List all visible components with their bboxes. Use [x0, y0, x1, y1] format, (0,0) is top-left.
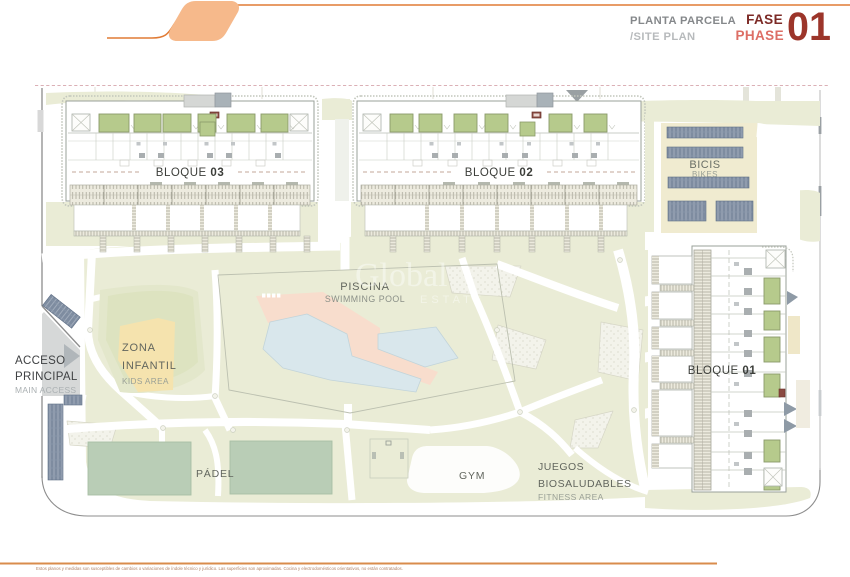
svg-text:01: 01 [787, 5, 831, 49]
svg-text:ACCESO: ACCESO [15, 355, 65, 367]
svg-text:GYM: GYM [459, 470, 485, 482]
svg-text:FITNESS AREA: FITNESS AREA [538, 492, 604, 502]
svg-text:PHASE: PHASE [735, 28, 784, 43]
svg-text:BLOQUE 01: BLOQUE 01 [688, 365, 757, 377]
svg-text:KIDS AREA: KIDS AREA [122, 377, 169, 386]
svg-text:PÁDEL: PÁDEL [196, 467, 234, 480]
svg-text:BLOQUE 02: BLOQUE 02 [465, 167, 533, 179]
svg-text:Estos planos y medidas son sus: Estos planos y medidas son susceptibles … [36, 566, 403, 571]
svg-text:Global: Global [355, 257, 448, 294]
svg-text:ZONA: ZONA [122, 342, 156, 354]
svg-text:PRINCIPAL: PRINCIPAL [15, 371, 78, 383]
svg-text:BIOSALUDABLES: BIOSALUDABLES [538, 478, 631, 490]
svg-text:FASE: FASE [746, 12, 783, 27]
svg-text:ESTATE: ESTATE [420, 294, 485, 306]
svg-text:MAIN ACCESS: MAIN ACCESS [15, 385, 76, 395]
svg-text:PLANTA PARCELA: PLANTA PARCELA [630, 15, 736, 27]
svg-text:INFANTIL: INFANTIL [122, 360, 177, 372]
svg-text:BLOQUE 03: BLOQUE 03 [156, 167, 224, 179]
svg-text:SWIMMING POOL: SWIMMING POOL [325, 294, 405, 304]
svg-text:JUEGOS: JUEGOS [538, 461, 584, 473]
svg-text:/SITE PLAN: /SITE PLAN [630, 31, 696, 43]
